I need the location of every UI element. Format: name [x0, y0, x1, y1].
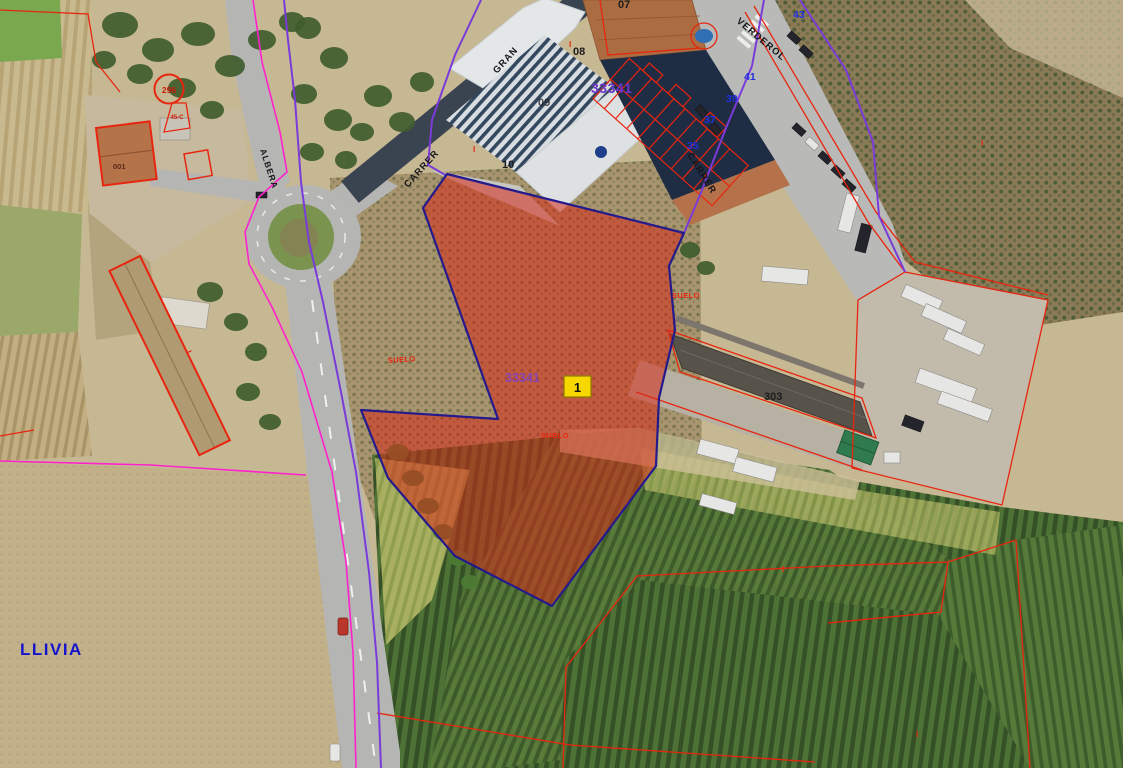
- parcel-number-08: 08: [573, 46, 585, 58]
- suelo-label-east: SUELO: [672, 291, 700, 300]
- house-number-39: 39: [726, 93, 738, 105]
- cadastral-circle-label: 296: [162, 85, 176, 95]
- building-001-label: 001: [113, 162, 126, 171]
- house-number-43: 43: [793, 9, 805, 21]
- floor-mark-icon: I: [569, 40, 571, 49]
- house-number-37: 37: [704, 114, 716, 126]
- parcel-marker-number: 1: [574, 380, 581, 395]
- water-tank: [595, 146, 607, 158]
- parcel-number-07: 07: [618, 0, 630, 11]
- zone-number-secondary: 33341: [505, 371, 540, 385]
- zone-number: 33341: [591, 80, 632, 96]
- house-red-roof: [96, 121, 157, 185]
- floor-mark-icon: I: [981, 139, 983, 148]
- suelo-label-center: SUELO: [541, 431, 569, 440]
- red-truck: [338, 618, 348, 635]
- parcel-number-10: 10: [502, 159, 514, 171]
- floor-mark-icon: I: [473, 145, 475, 154]
- parcel-number-09: 09: [538, 97, 550, 109]
- floor-mark-icon: I: [782, 565, 784, 574]
- place-label: LLIVIA: [20, 640, 83, 659]
- warehouse-number: 303: [764, 391, 782, 403]
- swimming-pool: [695, 29, 713, 43]
- floor-mark-icon: I: [916, 730, 918, 739]
- cadastral-circle-sublabel: 45-C: [170, 115, 184, 121]
- house-number-35: 35: [687, 140, 699, 152]
- map-canvas: LLIVIA 33341 33341 SUELO SUELO SUELO GRA…: [0, 0, 1123, 768]
- aerial-cadastral-map: LLIVIA 33341 33341 SUELO SUELO SUELO GRA…: [0, 0, 1123, 768]
- parcel-marker[interactable]: 1: [564, 376, 591, 397]
- house-number-41: 41: [744, 71, 756, 83]
